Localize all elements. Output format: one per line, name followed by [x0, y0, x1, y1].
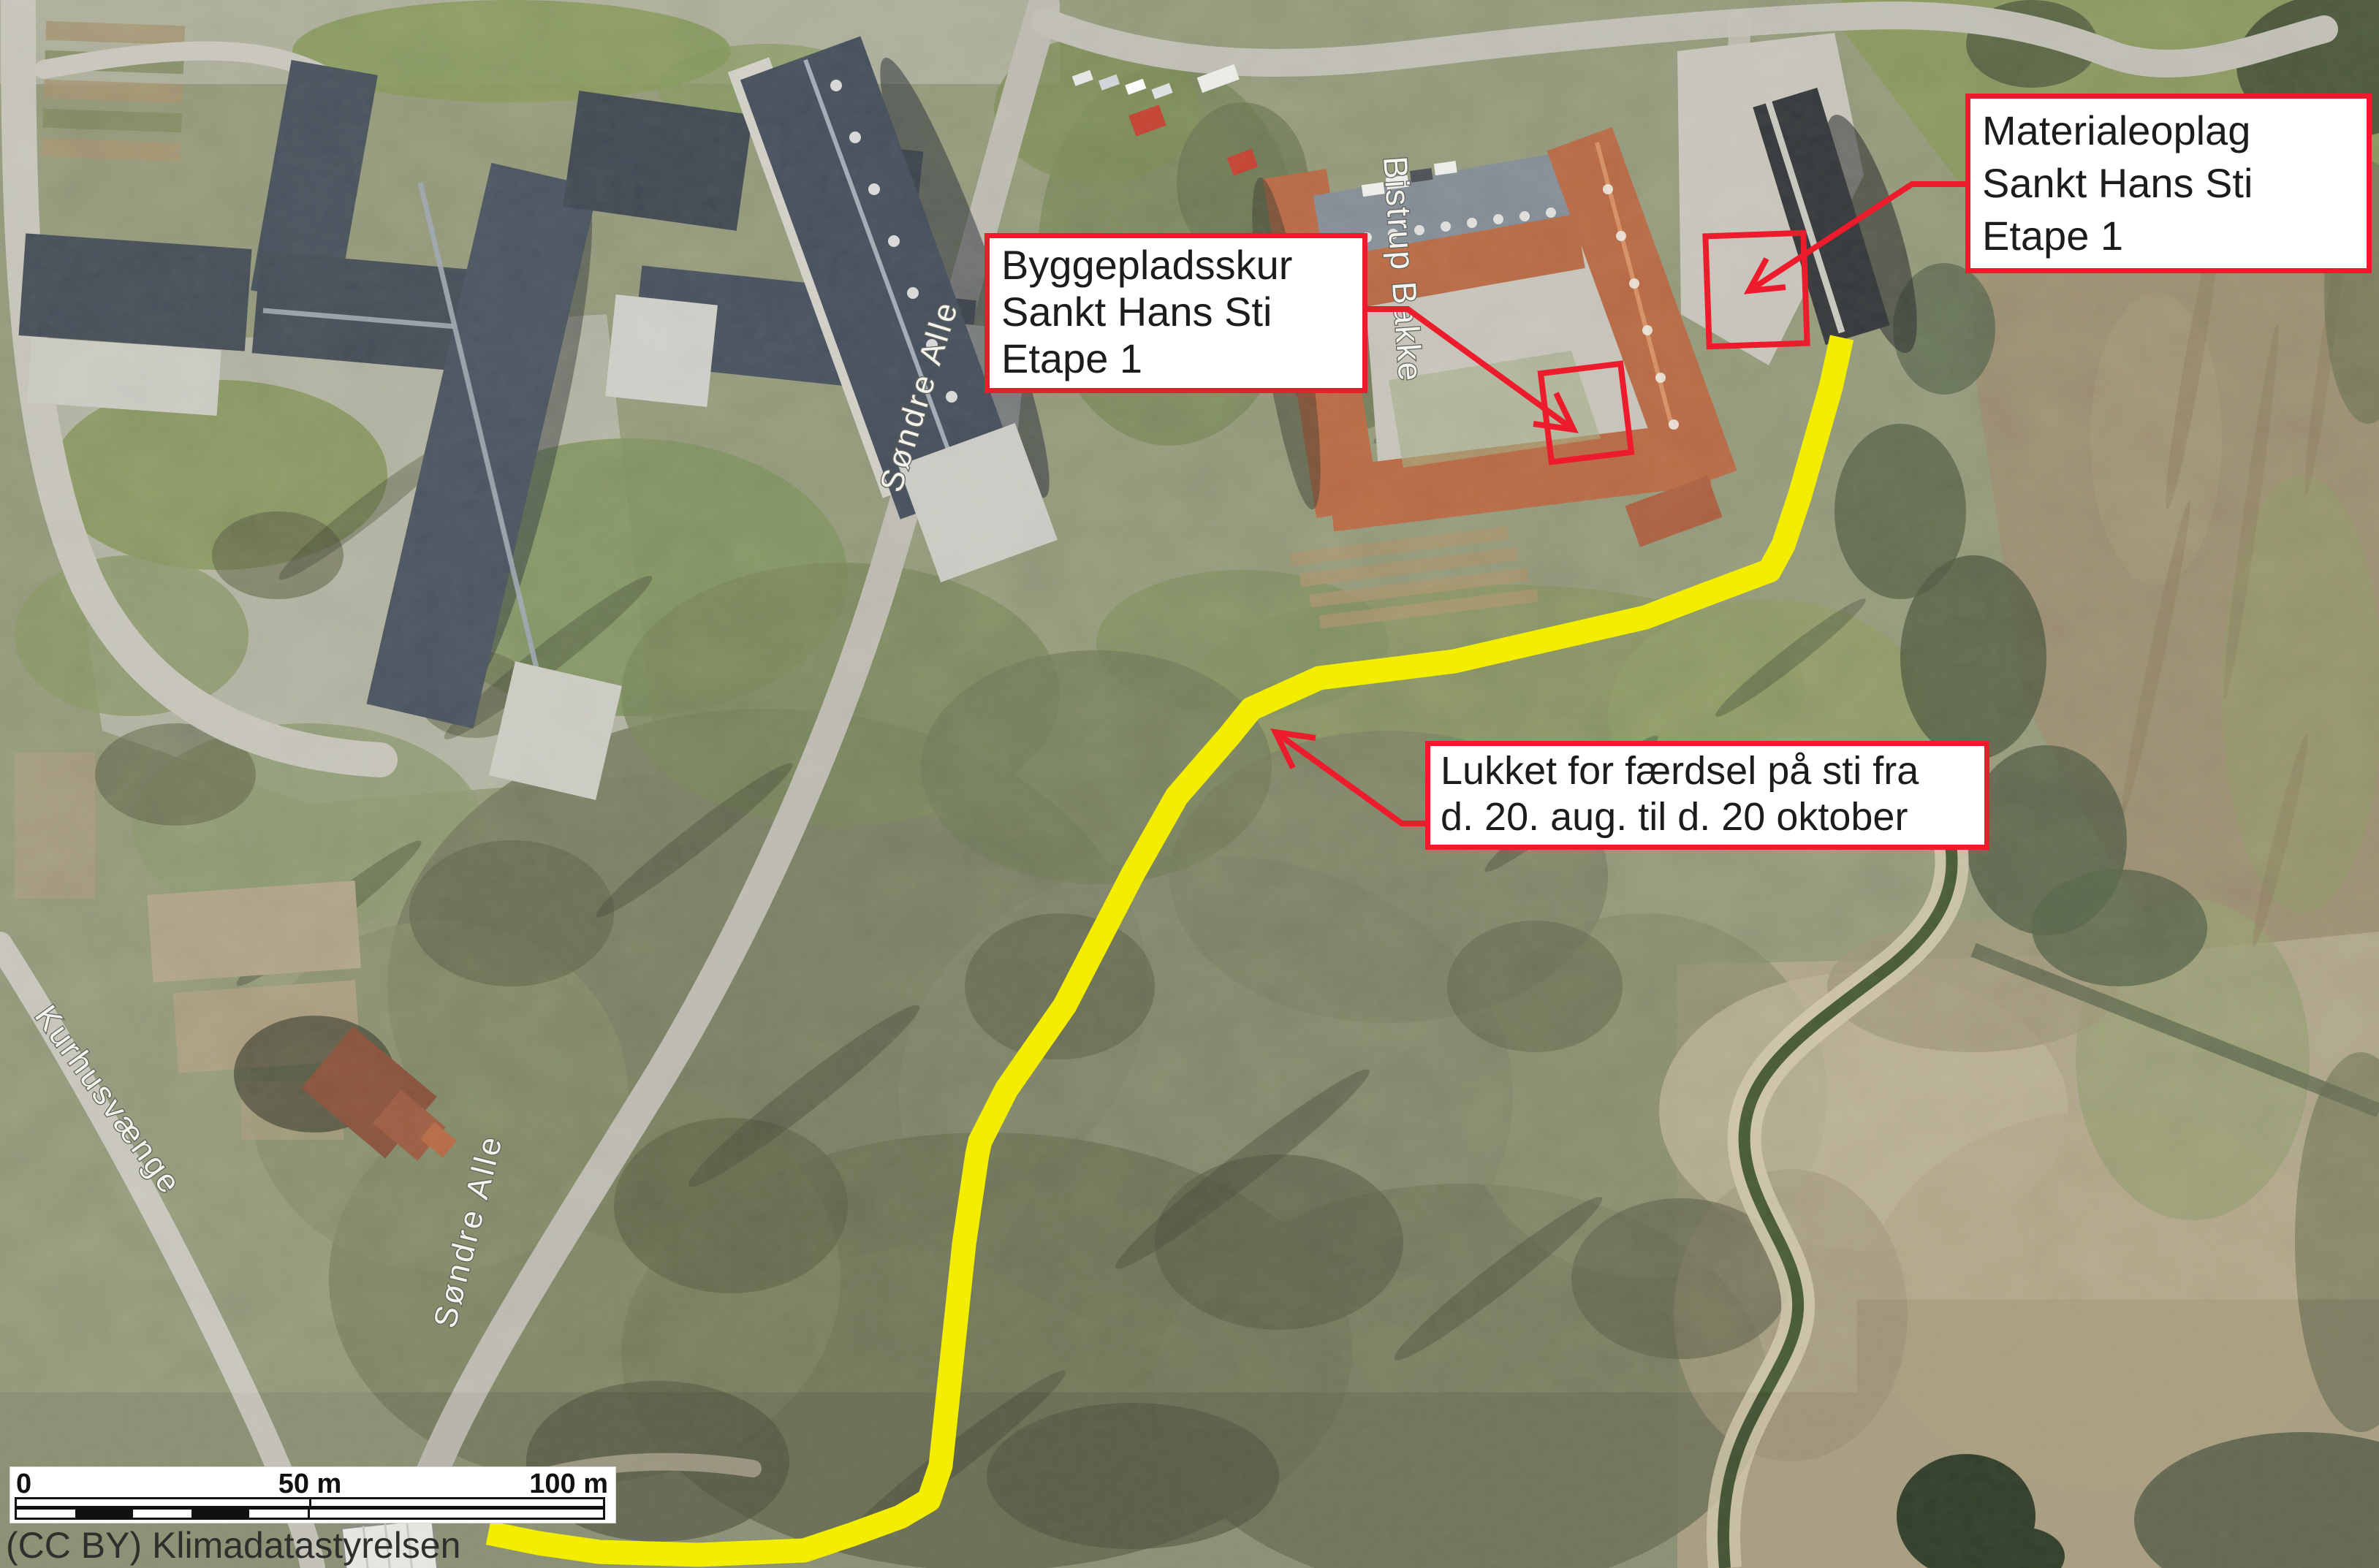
scale-segment: [133, 1510, 191, 1518]
scale-segment: [311, 1499, 604, 1506]
scale-segment: [17, 1510, 75, 1518]
callout-line: Byggepladsskur: [1001, 242, 1357, 289]
callout-line: Etape 1: [1001, 335, 1357, 382]
scale-segment: [75, 1510, 134, 1518]
scale-segment: [249, 1510, 310, 1518]
scale-segment: [191, 1510, 250, 1518]
map-canvas: Bistrup Bakke Søndre Alle Søndre Alle Ku…: [0, 0, 2379, 1568]
scale-tick-0: 0: [16, 1469, 31, 1500]
scale-segment: [17, 1499, 311, 1506]
scale-bar-upper: [15, 1497, 605, 1508]
scale-segment: [310, 1510, 603, 1518]
callout-materialeoplag: Materialeoplag Sankt Hans Sti Etape 1: [1965, 94, 2372, 273]
scale-half-50-100: [310, 1510, 603, 1518]
scale-half-0-50: [17, 1510, 310, 1518]
callout-line: Lukket for færdsel på sti fra: [1441, 748, 1978, 794]
callout-line: d. 20. aug. til d. 20 oktober: [1441, 794, 1978, 840]
callout-line: Etape 1: [1982, 210, 2361, 262]
scale-tick-100: 100 m: [529, 1469, 608, 1500]
scale-bar-lower: [15, 1507, 605, 1520]
callout-line: Materialeoplag: [1982, 104, 2361, 157]
scale-tick-50: 50 m: [278, 1469, 342, 1500]
callout-byggepladsskur: Byggepladsskur Sankt Hans Sti Etape 1: [984, 233, 1367, 393]
callout-line: Sankt Hans Sti: [1001, 289, 1357, 335]
callout-line: Sankt Hans Sti: [1982, 157, 2361, 210]
scale-bar: 0 50 m 100 m: [10, 1467, 615, 1523]
attribution-text: (CC BY) Klimadatastyrelsen: [6, 1524, 460, 1567]
callout-sti-lukket: Lukket for færdsel på sti fra d. 20. aug…: [1425, 741, 1989, 850]
